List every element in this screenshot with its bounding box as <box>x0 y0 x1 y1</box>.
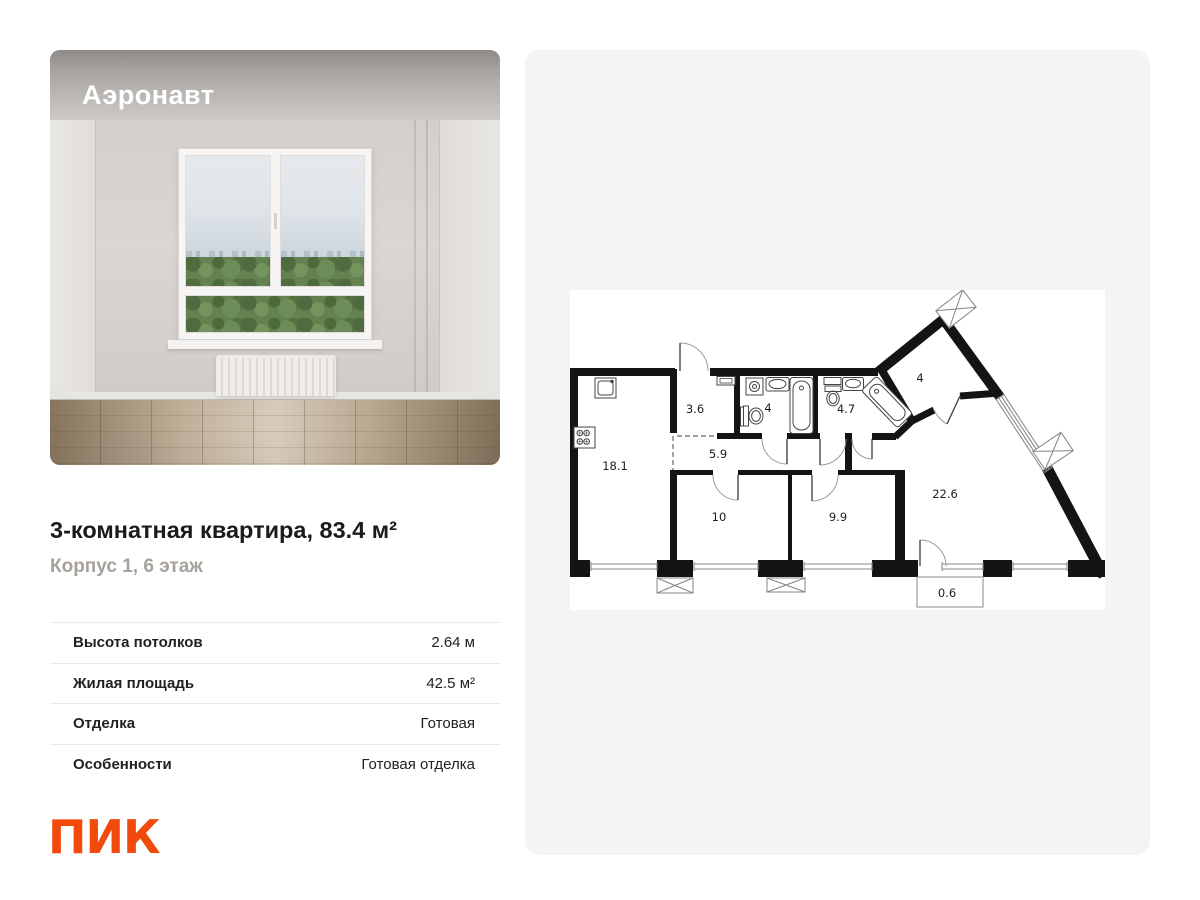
developer-logo: ПИК <box>48 810 160 864</box>
spec-value: 2.64 м <box>431 634 475 651</box>
room-area-label: 4 <box>916 371 923 385</box>
room-area-label: 4.7 <box>837 402 855 416</box>
page-title: 3-комнатная квартира, 83.4 м² <box>50 517 397 544</box>
table-row: Высота потолков 2.64 м <box>50 622 500 663</box>
stove-icon <box>574 427 595 448</box>
listing-page: Аэронавт 3-комнатная квартира, 83.4 м² К… <box>0 0 1200 900</box>
washing-machine-icon <box>746 378 763 395</box>
room-area-label: 22.6 <box>932 487 958 501</box>
spec-value: Готовая <box>421 715 475 732</box>
walls <box>570 368 1105 577</box>
table-row: Отделка Готовая <box>50 703 500 744</box>
kitchen-sink-icon <box>595 378 616 398</box>
sink-icon <box>843 378 864 391</box>
table-row: Жилая площадь 42.5 м² <box>50 663 500 704</box>
room-area-label: 10 <box>712 510 727 524</box>
room-area-label: 4 <box>764 401 771 415</box>
building-name-watermark: Аэронавт <box>82 80 215 111</box>
table-row: Особенности Готовая отделка <box>50 744 500 785</box>
bathtub-icon <box>790 378 813 434</box>
apartment-photo[interactable]: Аэронавт <box>50 50 500 465</box>
spec-label: Высота потолков <box>73 634 203 651</box>
page-subtitle: Корпус 1, 6 этаж <box>50 556 203 578</box>
toilet-icon <box>741 406 764 426</box>
floorplan-image[interactable]: 18.1 3.6 4 5.9 4.7 4 10 9.9 22.6 0.6 <box>570 290 1105 610</box>
sink-icon <box>766 378 789 392</box>
ac-basket-icons <box>657 578 805 593</box>
facade-windows <box>591 395 1067 572</box>
room-area-label: 5.9 <box>709 447 727 461</box>
spec-label: Жилая площадь <box>73 675 194 692</box>
floorplan-panel: 18.1 3.6 4 5.9 4.7 4 10 9.9 22.6 0.6 <box>525 50 1150 855</box>
room-area-label: 18.1 <box>602 459 628 473</box>
photo-vignette <box>50 50 500 465</box>
specs-table: Высота потолков 2.64 м Жилая площадь 42.… <box>50 622 500 784</box>
duct-box-icon <box>717 377 735 386</box>
room-area-label: 9.9 <box>829 510 847 524</box>
spec-value: 42.5 м² <box>426 675 475 692</box>
spec-label: Особенности <box>73 756 172 773</box>
spec-value: Готовая отделка <box>361 756 475 773</box>
room-area-label: 3.6 <box>686 402 704 416</box>
room-area-label: 0.6 <box>938 586 956 600</box>
floorplan-svg: 18.1 3.6 4 5.9 4.7 4 10 9.9 22.6 0.6 <box>570 290 1105 610</box>
spec-label: Отделка <box>73 715 135 732</box>
